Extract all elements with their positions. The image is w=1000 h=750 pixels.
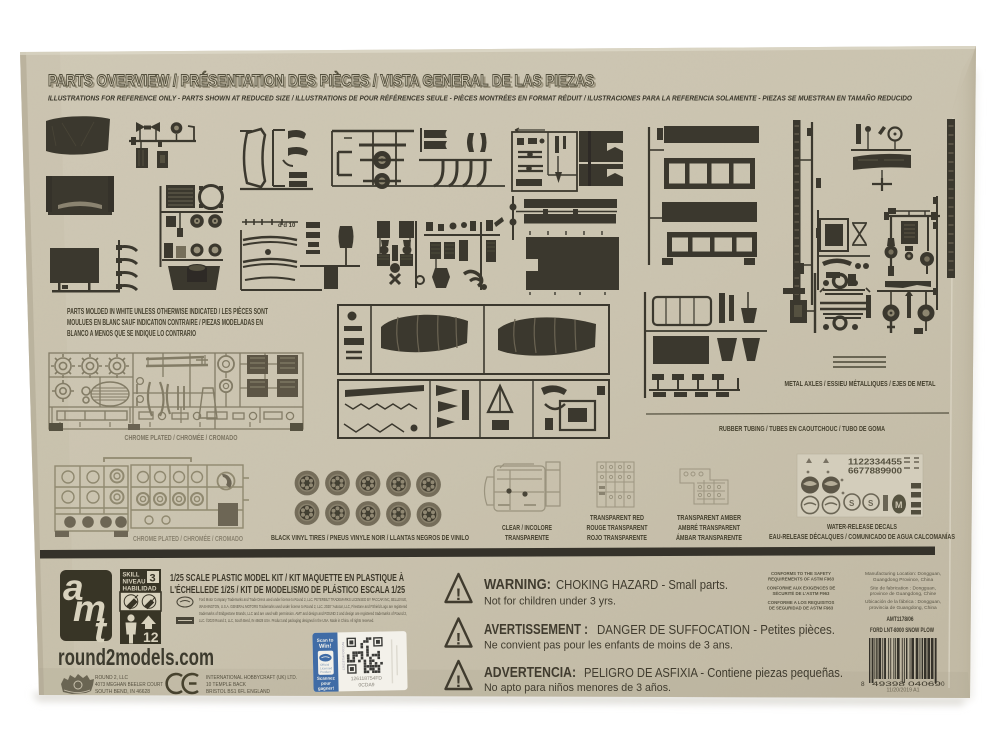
svg-text:Not for children under 3 yrs.: Not for children under 3 yrs. — [484, 596, 616, 608]
svg-text:INTERNATIONAL HOBBYCRAFT (UK): INTERNATIONAL HOBBYCRAFT (UK) LTD. — [206, 675, 297, 681]
svg-text:ÁMBAR TRANSPARENTE: ÁMBAR TRANSPARENTE — [676, 533, 742, 542]
svg-text:trademarks of Bridgestone Bran: trademarks of Bridgestone Brands, LLC an… — [199, 611, 407, 616]
svg-text:126118754FD0CDA9: 126118754FD0CDA9 — [341, 642, 346, 671]
svg-text:provincia de Guangdong, China: provincia de Guangdong, China — [869, 605, 937, 611]
svg-text:0: 0 — [941, 681, 945, 688]
svg-text:0CDA9: 0CDA9 — [358, 682, 374, 688]
svg-text:L'ÉCHELLEDE 1/25 / KIT DE MODE: L'ÉCHELLEDE 1/25 / KIT DE MODELISMO DE P… — [170, 584, 405, 596]
svg-text:gagner!: gagner! — [318, 686, 335, 691]
svg-text:S: S — [849, 499, 855, 508]
svg-text:MOULUES EN BLANC SAUF INDICATI: MOULUES EN BLANC SAUF INDICATION CONTRAI… — [67, 318, 263, 327]
svg-text:10 TEMPLE BACK: 10 TEMPLE BACK — [206, 682, 246, 688]
svg-text:11/20/2019 A1: 11/20/2019 A1 — [886, 688, 919, 694]
svg-text:TRANSPARENT AMBER: TRANSPARENT AMBER — [677, 513, 742, 522]
svg-text:!: ! — [456, 585, 462, 604]
svg-text:ILLUSTRATIONS FOR REFERENCE ON: ILLUSTRATIONS FOR REFERENCE ONLY - PARTS… — [48, 94, 912, 103]
svg-text:WATER-RELEASE DECALS: WATER-RELEASE DECALS — [827, 522, 897, 531]
svg-text:RUBBER TUBING / TUBES EN CAOUT: RUBBER TUBING / TUBES EN CAOUTCHOUC / TU… — [719, 424, 885, 433]
svg-text:ROUGE TRANSPARENT: ROUGE TRANSPARENT — [587, 523, 648, 532]
svg-text:!: ! — [456, 672, 462, 691]
svg-text:8: 8 — [861, 681, 865, 688]
svg-text:PELIGRO DE ASFIXIA - Contiene: PELIGRO DE ASFIXIA - Contiene piezas peq… — [584, 666, 843, 680]
svg-text:M: M — [895, 500, 903, 510]
svg-text:Ne convient pas pour les enfan: Ne convient pas pour les enfants de moin… — [484, 640, 733, 652]
svg-text:AVERTISSEMENT :: AVERTISSEMENT : — [484, 622, 588, 638]
svg-text:Scan to: Scan to — [317, 638, 334, 643]
svg-text:Ford Motor Company Trademarks: Ford Motor Company Trademarks and Trade … — [199, 597, 407, 602]
svg-text:EAU-RELEASE DÉCALQUES / COMUNI: EAU-RELEASE DÉCALQUES / COMUNICADO DE AG… — [769, 532, 955, 541]
svg-text:CONFORME A LOS REQUISITOS: CONFORME A LOS REQUISITOS — [768, 600, 835, 605]
svg-text:Site de fabrication : Donggua: Site de fabrication : Dongguan, — [870, 586, 936, 592]
svg-text:AMBRÉ TRANSPARENT: AMBRÉ TRANSPARENT — [678, 523, 740, 532]
svg-text:METAL AXLES / ESSIEU MÉTALLIQU: METAL AXLES / ESSIEU MÉTALLIQUES / EJES … — [785, 379, 936, 388]
svg-text:TRANSPARENT RED: TRANSPARENT RED — [590, 513, 644, 522]
svg-text:S: S — [868, 499, 874, 508]
svg-text:FORD LNT-8000 SNOW PLOW: FORD LNT-8000 SNOW PLOW — [870, 627, 934, 634]
svg-text:WARNING:: WARNING: — [484, 576, 551, 593]
svg-text:CHROME PLATED / CHROMÉE / CROM: CHROME PLATED / CHROMÉE / CROMADO — [125, 433, 238, 442]
svg-text:DANGER DE SUFFOCATION - Petite: DANGER DE SUFFOCATION - Petites pièces. — [597, 623, 835, 637]
svg-text:Guangdong Province, China: Guangdong Province, China — [873, 577, 934, 583]
svg-text:SÉCURITÉ DE L'ASTM F963: SÉCURITÉ DE L'ASTM F963 — [773, 591, 830, 596]
svg-text:CONFORMS TO THE SAFETY: CONFORMS TO THE SAFETY — [771, 571, 831, 576]
svg-text:Manufacturing Location: Dongg: Manufacturing Location: Dongguan, — [865, 571, 941, 577]
svg-text:!: ! — [456, 630, 462, 649]
svg-text:CHOKING HAZARD - Small parts.: CHOKING HAZARD - Small parts. — [556, 578, 728, 592]
svg-text:SOUTH BEND, IN 46628: SOUTH BEND, IN 46628 — [95, 689, 150, 695]
svg-text:CONFORME AUX EXIGENCES DE: CONFORME AUX EXIGENCES DE — [767, 586, 836, 591]
svg-text:CLEAR / INCOLORE: CLEAR / INCOLORE — [502, 523, 552, 532]
svg-text:WASHINGTON, U.S.A. GENERAL MOT: WASHINGTON, U.S.A. GENERAL MOTORS Tradem… — [199, 604, 407, 609]
svg-text:d d 10: d d 10 — [278, 223, 296, 229]
svg-text:PARTS MOLDED IN WHITE UNLESS O: PARTS MOLDED IN WHITE UNLESS OTHERWISE I… — [67, 307, 268, 316]
svg-text:3: 3 — [150, 573, 156, 585]
svg-text:BLANCO A MENOS QUE SE INDIQUE: BLANCO A MENOS QUE SE INDIQUE LO CONTRAR… — [67, 329, 196, 338]
svg-text:R: R — [63, 636, 67, 642]
svg-text:REQUIREMENTS OF ASTM F963: REQUIREMENTS OF ASTM F963 — [768, 577, 835, 582]
svg-text:SKILL: SKILL — [123, 572, 140, 579]
svg-text:round2models.com: round2models.com — [58, 644, 214, 670]
svg-text:TRANSPARENTE: TRANSPARENTE — [505, 533, 549, 542]
svg-text:BRISTOL BS1 6FL ENGLAND: BRISTOL BS1 6FL ENGLAND — [206, 689, 270, 695]
svg-text:126118754FD: 126118754FD — [351, 676, 383, 683]
svg-text:NIVEAU: NIVEAU — [123, 579, 146, 586]
svg-text:province de Guangdong, Chine: province de Guangdong, Chine — [870, 591, 937, 597]
svg-text:CHROME PLATED / CHROMÉE / CROM: CHROME PLATED / CHROMÉE / CROMADO — [133, 534, 243, 543]
svg-text:ADVERTENCIA:: ADVERTENCIA: — [484, 665, 576, 681]
svg-text:DE SEGURIDAD DE ASTM F963: DE SEGURIDAD DE ASTM F963 — [769, 606, 834, 611]
svg-text:Ubicación de la fábrica : Don: Ubicación de la fábrica : Dongguan, — [865, 599, 941, 605]
svg-text:Win!: Win! — [319, 644, 332, 650]
svg-text:AMT1178/06: AMT1178/06 — [887, 616, 914, 623]
svg-text:ROJO TRANSPARENTE: ROJO TRANSPARENTE — [587, 533, 647, 542]
svg-text:Product: Product — [320, 670, 331, 674]
svg-text:1/25 SCALE PLASTIC MODEL KIT /: 1/25 SCALE PLASTIC MODEL KIT / KIT MAQUE… — [170, 572, 404, 584]
svg-text:BLACK VINYL TIRES / PNEUS VINY: BLACK VINYL TIRES / PNEUS VINYLE NOIR / … — [271, 533, 469, 542]
svg-text:4073 MEGHAN BEELER COURT: 4073 MEGHAN BEELER COURT — [95, 682, 164, 688]
svg-text:PARTS OVERVIEW / PRÉSENTATION: PARTS OVERVIEW / PRÉSENTATION DES PIÈCES… — [48, 71, 594, 90]
svg-text:6677889900: 6677889900 — [848, 466, 902, 476]
svg-text:12: 12 — [143, 629, 159, 645]
svg-text:LLC. ©2020 Round 2, LLC, South: LLC. ©2020 Round 2, LLC, South Bend, IN … — [199, 618, 374, 623]
svg-text:ROUND 2, LLC: ROUND 2, LLC — [95, 675, 128, 681]
svg-text:No apto para niños menores de: No apto para niños menores de 3 años. — [484, 682, 671, 694]
